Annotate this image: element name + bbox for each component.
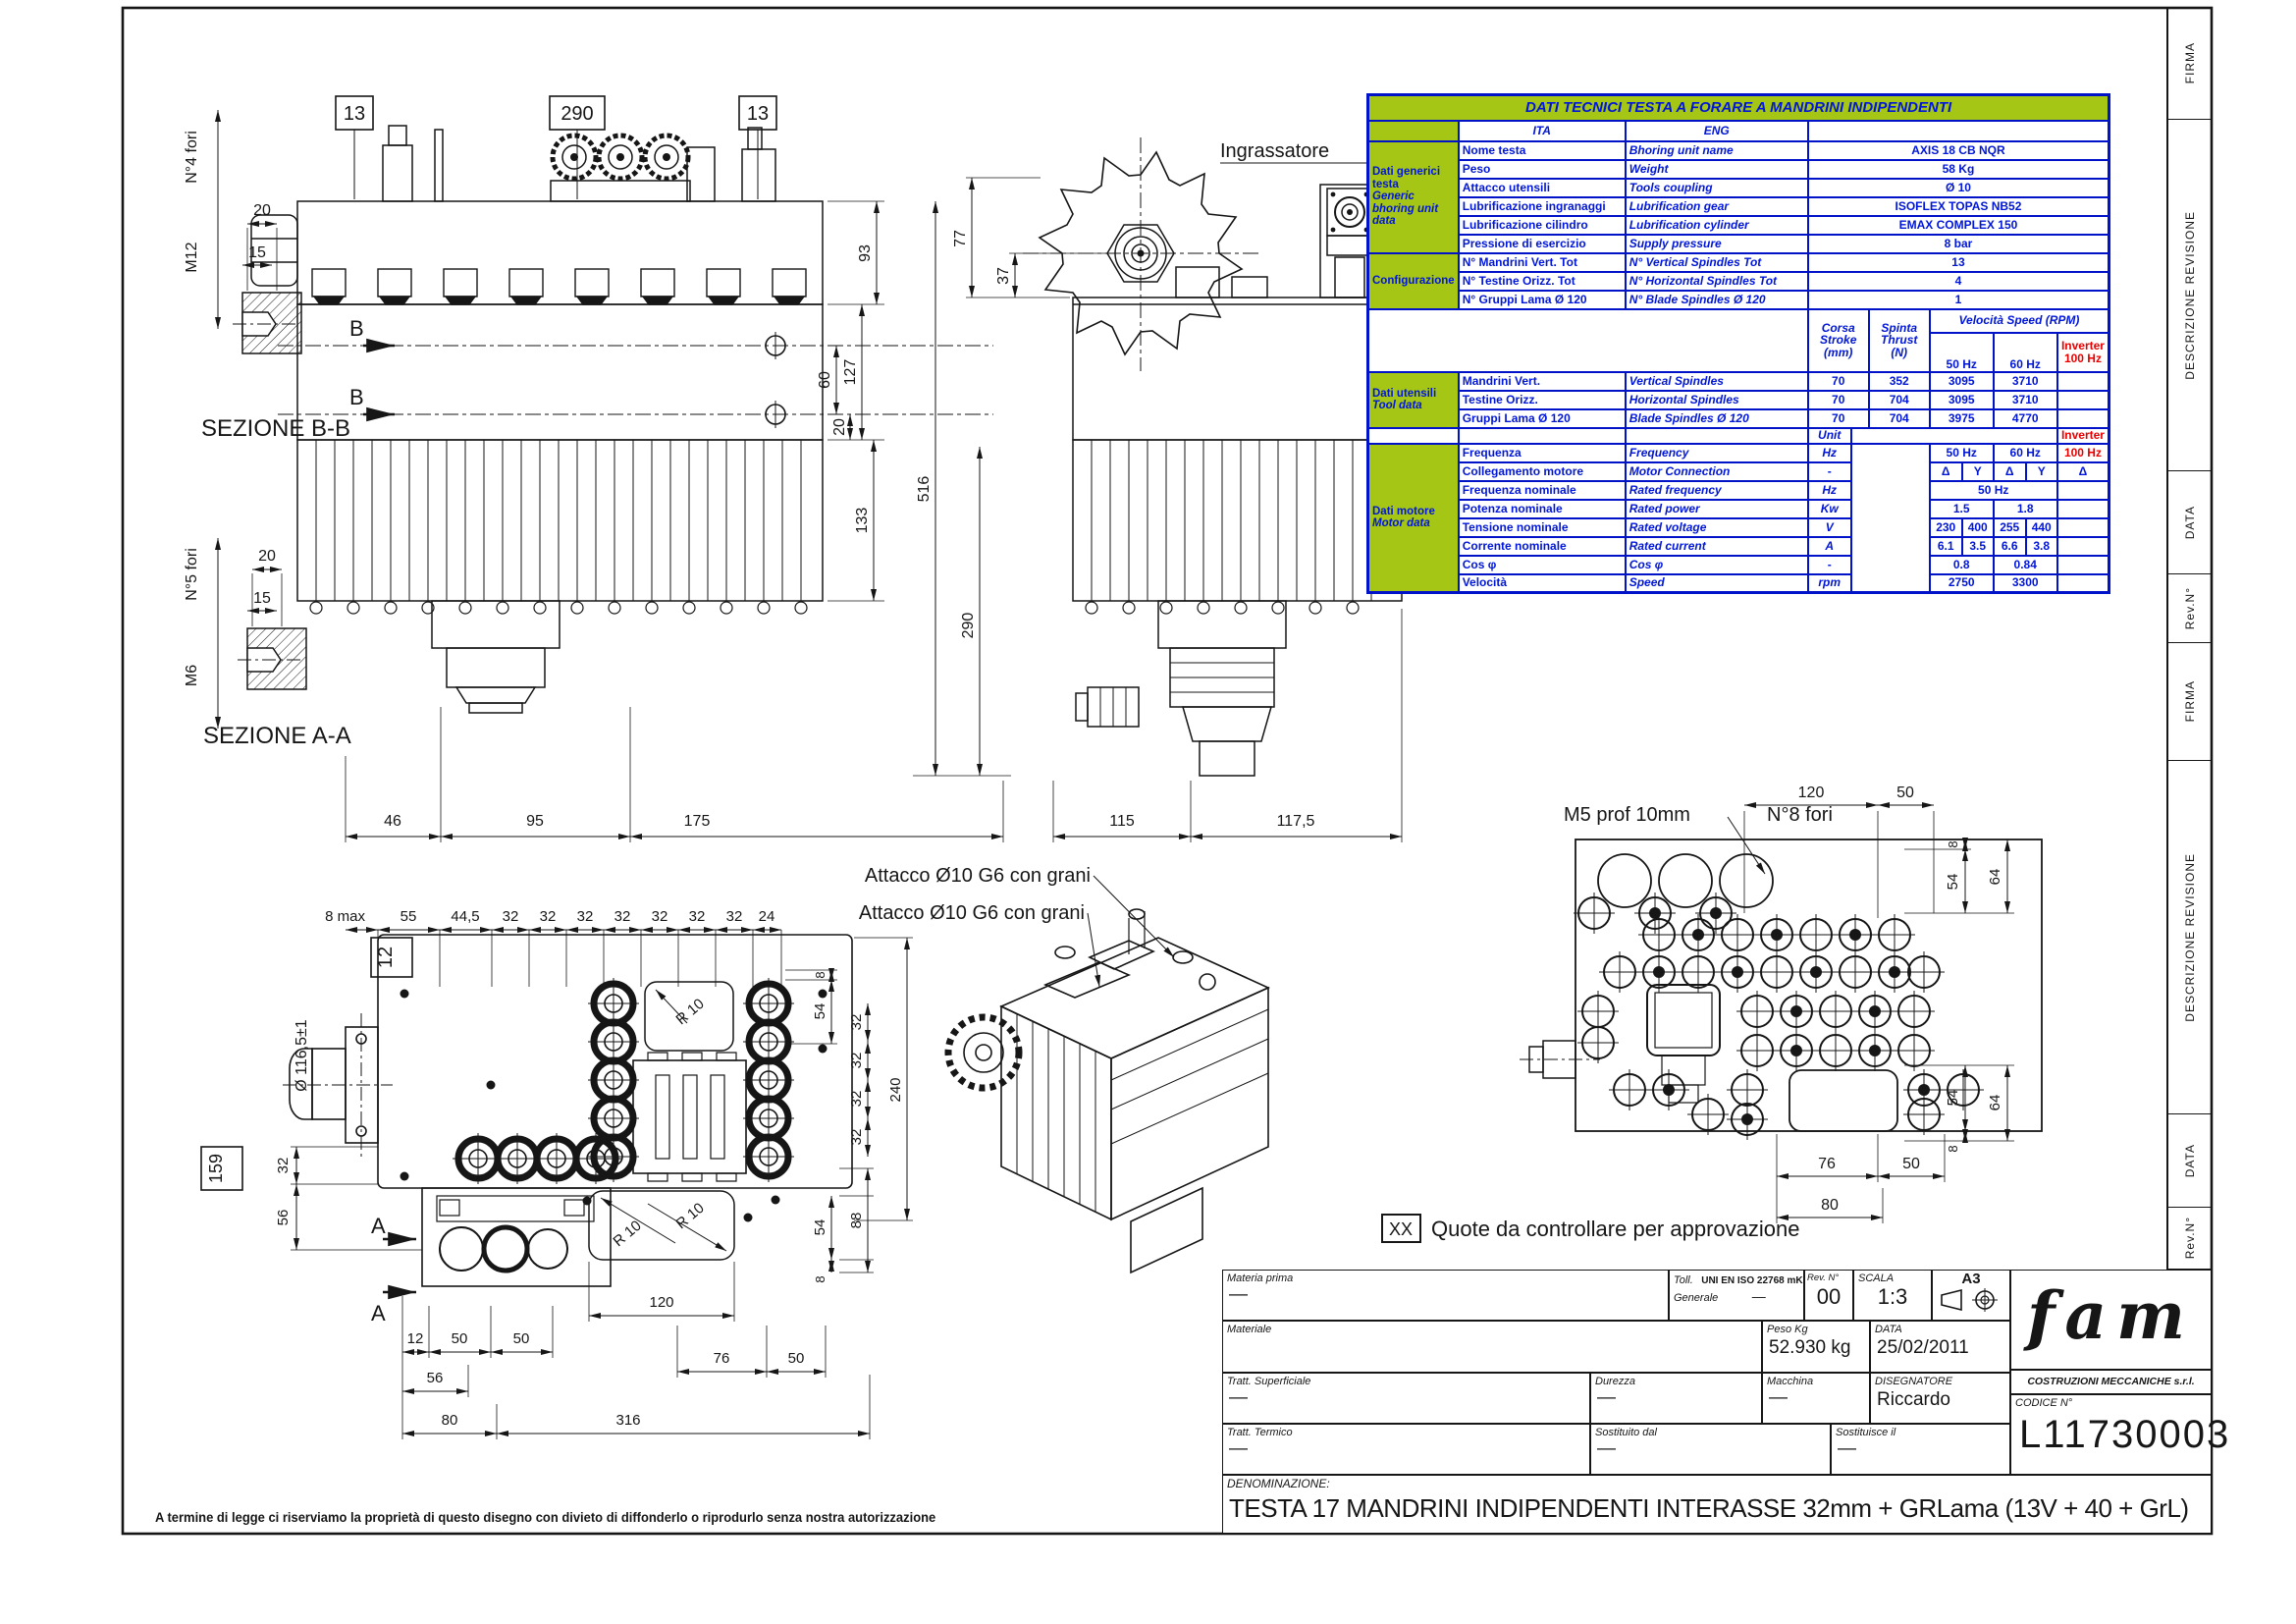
- unit-label: Unit: [1808, 428, 1851, 444]
- data-cell: DATA 25/02/2011: [1870, 1321, 2010, 1373]
- row-label-ita: N° Gruppi Lama Ø 120: [1459, 291, 1626, 309]
- row-value: Ø 10: [1808, 179, 2109, 197]
- val: 3.8: [2026, 537, 2057, 556]
- field-label: Tratt. Termico: [1223, 1425, 1589, 1438]
- dim-chain-32: 32: [652, 908, 668, 925]
- row-label-ita: Attacco utensili: [1459, 179, 1626, 197]
- field-value: 00: [1805, 1284, 1852, 1310]
- dim-88: 88: [848, 1213, 865, 1229]
- field-label: CODICE N°: [2011, 1395, 2211, 1409]
- inverter-label: Inverter: [2057, 428, 2109, 444]
- row-label-eng: N° Blade Spindles Ø 120: [1626, 291, 1808, 309]
- approval-note: XX Quote da controllare per approvazione: [1382, 1215, 1799, 1242]
- val: 0.84: [1994, 556, 2057, 574]
- dim-117-5: 117,5: [1277, 813, 1315, 830]
- dim-8-br: 8: [1946, 1145, 1960, 1152]
- row-label-eng: Speed: [1626, 574, 1808, 593]
- rev-cell: Rev. N° 00: [1804, 1270, 1853, 1321]
- dim-56b: 56: [427, 1370, 444, 1386]
- section-a-mark-top: A: [371, 1214, 386, 1238]
- dim-240: 240: [887, 1077, 904, 1102]
- hdr-line: Inverter: [2061, 340, 2106, 352]
- radius-r10: R 10: [611, 1218, 645, 1250]
- peso-cell: Peso Kg 52.930 kg: [1762, 1321, 1870, 1373]
- row-label-eng: Bhoring unit name: [1626, 141, 1808, 160]
- aa-holes-label: N°5 fori: [184, 548, 200, 601]
- scala-cell: SCALA 1:3: [1853, 1270, 1932, 1321]
- aa-dim-20: 20: [258, 548, 276, 565]
- row-label-ita: Nome testa: [1459, 141, 1626, 160]
- sheet-format: A3: [1961, 1271, 1980, 1287]
- fam-logo: fam: [2010, 1270, 2212, 1370]
- val-60hz: 3710: [1994, 372, 2057, 391]
- field-label: Materia prima: [1223, 1271, 1668, 1284]
- section-bb-title: SEZIONE B-B: [201, 415, 350, 442]
- row-label-ita: Cos φ: [1459, 556, 1626, 574]
- cat-line: Configurazione: [1372, 275, 1455, 288]
- field-value: UNI EN ISO 22768 mK: [1697, 1275, 1802, 1286]
- field-value: 52.930 kg: [1763, 1335, 1869, 1359]
- attacco-label-2: Attacco Ø10 G6 con grani: [859, 902, 1085, 924]
- val-spinta: 704: [1869, 391, 1930, 409]
- row-label-ita: Gruppi Lama Ø 120: [1459, 409, 1626, 428]
- dim-chain-44-5: 44,5: [451, 908, 479, 925]
- radius-r10: R 10: [673, 996, 708, 1028]
- dim-50c: 50: [788, 1350, 805, 1367]
- macchina-cell: Macchina —: [1762, 1373, 1870, 1424]
- dim-54-right: 54: [812, 1003, 828, 1020]
- dim-chain-32: 32: [503, 908, 519, 925]
- disegnatore-cell: DISEGNATORE Riccardo: [1870, 1373, 2010, 1424]
- dim-13-right: 13: [747, 103, 769, 125]
- val: 6.6: [1994, 537, 2026, 556]
- dim-8-bottom: 8: [813, 1275, 828, 1282]
- dim-80-bottom: 80: [1821, 1197, 1839, 1214]
- durezza-cell: Durezza —: [1590, 1373, 1762, 1424]
- rev-descrizione-label: DESCRIZIONE REVISIONE: [2183, 853, 2197, 1022]
- aa-dim-15: 15: [253, 590, 271, 607]
- val-50hz: 3095: [1930, 372, 1994, 391]
- row-label-eng: Vertical Spindles: [1626, 372, 1808, 391]
- field-label: Materiale: [1223, 1322, 1761, 1335]
- legal-notice: A termine di legge ci riserviamo la prop…: [155, 1510, 935, 1525]
- row-label-eng: Rated power: [1626, 500, 1808, 518]
- front-view-dims: [336, 96, 1011, 842]
- val: 400: [1962, 518, 1994, 537]
- tolleranza-cell: Toll. UNI EN ISO 22768 mK Generale —: [1669, 1270, 1804, 1321]
- dim-12: 12: [407, 1330, 424, 1347]
- bottom-view-spindles: [453, 978, 794, 1184]
- val-60hz: 60 Hz: [1994, 444, 2057, 462]
- dim-80: 80: [442, 1412, 458, 1429]
- materiale-cell: Materiale: [1222, 1321, 1762, 1373]
- row-label-ita: Mandrini Vert.: [1459, 372, 1626, 391]
- technical-data-table: DATI TECNICI TESTA A FORARE A MANDRINI I…: [1366, 93, 2110, 594]
- val: 3300: [1994, 574, 2057, 593]
- field-label: DISEGNATORE: [1871, 1374, 2009, 1387]
- field-value: 25/02/2011: [1871, 1335, 2009, 1359]
- row-value: 4: [1808, 272, 2109, 291]
- dim-64-br: 64: [1987, 1095, 2003, 1111]
- speed-header: Velocità Speed (RPM): [1930, 309, 2109, 333]
- field-label: Peso Kg: [1763, 1322, 1869, 1335]
- field-label: Macchina: [1763, 1374, 1869, 1387]
- dim-chain-32: 32: [577, 908, 594, 925]
- dim-chain-32: 32: [726, 908, 743, 925]
- dim-290-vert: 290: [960, 613, 977, 639]
- dim-8-right: 8: [813, 971, 828, 978]
- radius-r10: R 10: [673, 1200, 708, 1232]
- val: Δ: [1994, 462, 2026, 481]
- row-label-ita: Collegamento motore: [1459, 462, 1626, 481]
- field-value: —: [1223, 1284, 1248, 1305]
- row-label-ita: Pressione di esercizio: [1459, 235, 1626, 253]
- row-label-eng: Weight: [1626, 160, 1808, 179]
- dim-159-boxed: 159: [206, 1154, 226, 1183]
- field-label: SCALA: [1854, 1271, 1931, 1284]
- dim-20: 20: [831, 418, 848, 436]
- rev-data-label: DATA: [2183, 506, 2197, 539]
- dim-120-top: 120: [1798, 785, 1825, 801]
- hdr-line: 100 Hz: [2061, 352, 2106, 365]
- val-unit: rpm: [1808, 574, 1851, 593]
- row-label-ita: Lubrificazione ingranaggi: [1459, 197, 1626, 216]
- col-ita: ITA: [1459, 121, 1626, 141]
- dim-316: 316: [615, 1412, 640, 1429]
- materia-prima-cell: Materia prima —: [1222, 1270, 1669, 1321]
- row-value: EMAX COMPLEX 150: [1808, 216, 2109, 235]
- row-label-ita: N° Testine Orizz. Tot: [1459, 272, 1626, 291]
- row-label-eng: Rated current: [1626, 537, 1808, 556]
- dim-93: 93: [857, 244, 874, 262]
- row-label-eng: Supply pressure: [1626, 235, 1808, 253]
- row-label-ita: N° Mandrini Vert. Tot: [1459, 253, 1626, 272]
- field-value: 1:3: [1854, 1284, 1931, 1310]
- field-value: —: [1223, 1387, 1248, 1408]
- part-code: L11730003: [2011, 1409, 2211, 1457]
- col-eng: ENG: [1626, 121, 1808, 141]
- tratt-superficiale-cell: Tratt. Superficiale —: [1222, 1373, 1590, 1424]
- projection-symbol-icon: [1940, 1288, 2002, 1312]
- row-value: 1: [1808, 291, 2109, 309]
- top-view-spindles: [1574, 893, 1984, 1140]
- dim-50a: 50: [452, 1330, 468, 1347]
- dim-chain-32: 32: [540, 908, 557, 925]
- rev-number-label: Rev.N°: [2183, 587, 2197, 629]
- dim-chain-32: 32: [614, 908, 631, 925]
- val: 230: [1930, 518, 1962, 537]
- row-label-ita: Potenza nominale: [1459, 500, 1626, 518]
- val: Y: [1962, 462, 1994, 481]
- dim-290-boxed: 290: [561, 103, 593, 125]
- dim-8-tr: 8: [1946, 840, 1960, 847]
- dim-chain-32: 32: [689, 908, 706, 925]
- section-aa-title: SEZIONE A-A: [203, 723, 351, 749]
- row-label-eng: Rated voltage: [1626, 518, 1808, 537]
- section-bb-detail: [218, 110, 301, 353]
- field-label: DENOMINAZIONE:: [1223, 1476, 2211, 1489]
- cat-line: Generic: [1372, 190, 1455, 203]
- row-label-eng: N° Vertical Spindles Tot: [1626, 253, 1808, 272]
- field-value: Riccardo: [1871, 1387, 2009, 1411]
- format-cell: A3: [1932, 1270, 2010, 1321]
- dim-56-left: 56: [275, 1210, 292, 1226]
- val: 1.8: [1994, 500, 2057, 518]
- field-value: —: [1763, 1387, 1788, 1408]
- val: 255: [1994, 518, 2026, 537]
- row-label-eng: Horizontal Spindles: [1626, 391, 1808, 409]
- dim-50b: 50: [513, 1330, 530, 1347]
- dim-32-right: 32: [848, 1014, 865, 1031]
- row-label-ita: Frequenza nominale: [1459, 481, 1626, 500]
- hz50-header: 50 Hz: [1930, 333, 1994, 372]
- row-label-ita: Corrente nominale: [1459, 537, 1626, 556]
- val: 50 Hz: [1930, 481, 2057, 500]
- row-value: 13: [1808, 253, 2109, 272]
- field-value: —: [1832, 1438, 1856, 1459]
- approval-text: Quote da controllare per approvazione: [1431, 1217, 1799, 1241]
- val: 0.8: [1930, 556, 1994, 574]
- cat-line: Dati motore: [1372, 506, 1455, 518]
- greaser-label: Ingrassatore: [1220, 140, 1329, 162]
- dim-76: 76: [714, 1350, 730, 1367]
- val-50hz: 3975: [1930, 409, 1994, 428]
- row-label-ita: Frequenza: [1459, 444, 1626, 462]
- field-label: Toll.: [1670, 1272, 1693, 1286]
- rev-firma-label: FIRMA: [2183, 42, 2197, 83]
- dim-60: 60: [817, 371, 833, 389]
- val-corsa: 70: [1808, 372, 1869, 391]
- row-label-eng: Blade Spindles Ø 120: [1626, 409, 1808, 428]
- dim-127: 127: [842, 359, 859, 386]
- row-label-eng: Frequency: [1626, 444, 1808, 462]
- side-view-dims: [966, 163, 1402, 842]
- drawing-sheet: N°4 fori M12 20 15 SEZIONE B-B N°5 fori …: [0, 0, 2296, 1624]
- hdr-line: Stroke: [1812, 334, 1865, 347]
- dim-37: 37: [995, 267, 1012, 285]
- row-label-eng: Motor Connection: [1626, 462, 1808, 481]
- cat-line: data: [1372, 215, 1455, 228]
- row-label-ita: Lubrificazione cilindro: [1459, 216, 1626, 235]
- cat-line: testa: [1372, 179, 1455, 191]
- row-value: ISOFLEX TOPAS NB52: [1808, 197, 2109, 216]
- section-b-mark-bottom: B: [349, 385, 364, 409]
- m5-thread-label: M5 prof 10mm: [1564, 804, 1690, 826]
- val-50hz: 50 Hz: [1930, 444, 1994, 462]
- row-label-ita: Velocità: [1459, 574, 1626, 593]
- val: 440: [2026, 518, 2057, 537]
- dim-50-top: 50: [1896, 785, 1914, 801]
- front-view: [251, 126, 993, 713]
- rev-data-label: DATA: [2183, 1144, 2197, 1177]
- row-value: 8 bar: [1808, 235, 2109, 253]
- val: Y: [2026, 462, 2057, 481]
- dim-50-bottom: 50: [1902, 1156, 1920, 1172]
- dim-12-boxed: 12: [375, 947, 397, 968]
- val-spinta: 704: [1869, 409, 1930, 428]
- dim-516: 516: [916, 476, 933, 503]
- dim-13-left: 13: [344, 103, 365, 125]
- val-corsa: 70: [1808, 391, 1869, 409]
- dim-54-bottom: 54: [812, 1219, 828, 1236]
- rev-number-label: Rev.N°: [2183, 1217, 2197, 1259]
- table-title: DATI TECNICI TESTA A FORARE A MANDRINI I…: [1368, 95, 2109, 121]
- val: Δ: [1930, 462, 1962, 481]
- dim-32-left: 32: [275, 1158, 292, 1174]
- title-block: Materia prima — Toll. UNI EN ISO 22768 m…: [1222, 1270, 2212, 1534]
- dim-76-bottom: 76: [1818, 1156, 1836, 1172]
- val-unit: -: [1808, 556, 1851, 574]
- cat-line: Tool data: [1372, 400, 1455, 412]
- val-60hz: 4770: [1994, 409, 2057, 428]
- val: 6.1: [1930, 537, 1962, 556]
- val-unit: Hz: [1808, 481, 1851, 500]
- category-tool: Dati utensili Tool data: [1368, 372, 1459, 428]
- val-unit: Kw: [1808, 500, 1851, 518]
- val-unit: -: [1808, 462, 1851, 481]
- rev-firma-label: FIRMA: [2183, 680, 2197, 722]
- dim-54-tr: 54: [1945, 874, 1961, 891]
- category-config: Configurazione: [1368, 253, 1459, 309]
- dim-120: 120: [649, 1294, 673, 1311]
- dim-diameter-116: Ø 116,5±1: [294, 1019, 310, 1092]
- val-spinta: 352: [1869, 372, 1930, 391]
- hdr-line: Thrust: [1873, 334, 1926, 347]
- val: 2750: [1930, 574, 1994, 593]
- company-name: COSTRUZIONI MECCANICHE s.r.l. PESARO: [2010, 1370, 2212, 1394]
- m5-holes-label: N°8 fori: [1767, 804, 1833, 826]
- val-50hz: 3095: [1930, 391, 1994, 409]
- hz60-header: 60 Hz: [1994, 333, 2057, 372]
- row-label-ita: Testine Orizz.: [1459, 391, 1626, 409]
- rev-descrizione-label: DESCRIZIONE REVISIONE: [2183, 211, 2197, 380]
- field-label: Generale: [1670, 1290, 1718, 1304]
- denominazione-cell: DENOMINAZIONE: TESTA 17 MANDRINI INDIPEN…: [1222, 1475, 2212, 1534]
- row-label-ita: Tensione nominale: [1459, 518, 1626, 537]
- dim-175: 175: [684, 813, 711, 830]
- field-label: Durezza: [1591, 1374, 1761, 1387]
- val-corsa: 70: [1808, 409, 1869, 428]
- cat-line: Motor data: [1372, 517, 1455, 530]
- row-label-eng: Lubrification cylinder: [1626, 216, 1808, 235]
- val-unit: Hz: [1808, 444, 1851, 462]
- hdr-line: (N): [1873, 347, 1926, 359]
- row-value: 58 Kg: [1808, 160, 2109, 179]
- row-label-ita: Peso: [1459, 160, 1626, 179]
- dim-32-right: 32: [848, 1129, 865, 1146]
- drawing-title: TESTA 17 MANDRINI INDIPENDENTI INTERASSE…: [1223, 1489, 2211, 1524]
- section-aa-detail: [218, 538, 306, 729]
- val: Δ: [2057, 462, 2109, 481]
- field-value: [1223, 1335, 1761, 1337]
- field-label: Sostituito dal: [1591, 1425, 1830, 1438]
- side-view: [1023, 137, 1402, 776]
- row-label-eng: Tools coupling: [1626, 179, 1808, 197]
- dim-32-right: 32: [848, 1091, 865, 1108]
- approval-tag: XX: [1389, 1219, 1413, 1239]
- val: 3.5: [1962, 537, 1994, 556]
- section-b-mark-top: B: [349, 316, 364, 341]
- field-label: Tratt. Superficiale: [1223, 1374, 1589, 1387]
- cat-line: Dati utensili: [1372, 388, 1455, 401]
- field-label: Rev. N°: [1805, 1271, 1852, 1284]
- val: 1.5: [1930, 500, 1994, 518]
- dim-77: 77: [952, 230, 969, 247]
- row-value: AXIS 18 CB NQR: [1808, 141, 2109, 160]
- dim-8max: 8 max: [325, 908, 365, 925]
- category-generic: Dati generici testa Generic bhoring unit…: [1368, 141, 1459, 253]
- bb-thread-label: M12: [184, 242, 200, 272]
- dim-32-right: 32: [848, 1053, 865, 1069]
- row-label-eng: Rated frequency: [1626, 481, 1808, 500]
- codice-cell: CODICE N° L11730003: [2010, 1394, 2212, 1475]
- category-motor: Dati motore Motor data: [1368, 444, 1459, 593]
- bb-holes-label: N°4 fori: [184, 131, 200, 184]
- tratt-termico-cell: Tratt. Termico —: [1222, 1424, 1590, 1475]
- dim-chain-24: 24: [759, 908, 775, 925]
- field-label: Sostituisce il: [1832, 1425, 2009, 1438]
- dim-115: 115: [1109, 813, 1135, 830]
- row-label-eng: N° Horizontal Spindles Tot: [1626, 272, 1808, 291]
- field-label: DATA: [1871, 1322, 2009, 1335]
- val-unit: V: [1808, 518, 1851, 537]
- field-value: —: [1223, 1438, 1248, 1459]
- field-value: —: [1591, 1387, 1616, 1408]
- bottom-view-dims: [201, 930, 913, 1439]
- val-unit: A: [1808, 537, 1851, 556]
- spinta-header: Spinta Thrust (N): [1869, 309, 1930, 372]
- dim-46: 46: [384, 813, 401, 830]
- section-a-mark-bottom: A: [371, 1301, 386, 1326]
- corsa-header: Corsa Stroke (mm): [1808, 309, 1869, 372]
- aa-thread-label: M6: [184, 665, 200, 686]
- dim-95: 95: [526, 813, 544, 830]
- dim-64-tr: 64: [1987, 869, 2003, 886]
- val-60hz: 3710: [1994, 391, 2057, 409]
- sostituito-dal-cell: Sostituito dal —: [1590, 1424, 1831, 1475]
- dim-chain-55: 55: [400, 908, 417, 925]
- revision-strip: FIRMA DESCRIZIONE REVISIONE DATA Rev.N° …: [2166, 8, 2212, 1270]
- sostituisce-il-cell: Sostituisce il —: [1831, 1424, 2010, 1475]
- val-100hz: 100 Hz: [2057, 444, 2109, 462]
- attacco-label-1: Attacco Ø10 G6 con grani: [865, 865, 1091, 887]
- cat-line: bhoring unit: [1372, 203, 1455, 216]
- dim-54-br: 54: [1945, 1090, 1961, 1107]
- isometric-view: [948, 876, 1268, 1272]
- cat-line: Dati generici: [1372, 166, 1455, 179]
- row-label-eng: Lubrification gear: [1626, 197, 1808, 216]
- field-value: —: [1591, 1438, 1616, 1459]
- hdr-line: (mm): [1812, 347, 1865, 359]
- row-label-eng: Cos φ: [1626, 556, 1808, 574]
- inverter-header: Inverter 100 Hz: [2057, 333, 2109, 372]
- field-value: —: [1723, 1288, 1766, 1304]
- dim-133: 133: [854, 508, 871, 534]
